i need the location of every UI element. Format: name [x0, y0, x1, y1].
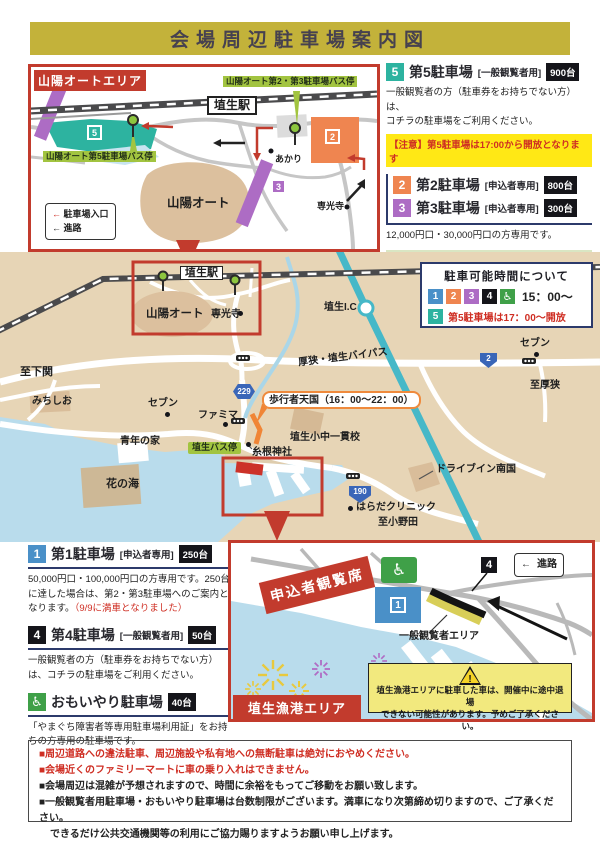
akari-label: あかり [275, 155, 302, 165]
lot5-badge: 5 [386, 63, 404, 81]
drivein-label: ドライブイン南国 [436, 464, 516, 475]
hours-title: 駐車可能時間について [428, 268, 585, 284]
famima-label: ファミマ [198, 410, 238, 421]
lot3-capacity: 300台 [544, 199, 577, 217]
hours-badge-2: 2 [446, 289, 461, 304]
inset-sanyo-auto-label: 山陽オート [167, 197, 230, 211]
inset-header: 山陽オートエリア [34, 70, 146, 91]
to-onoda-label: 至小野田 [378, 517, 418, 528]
lot5-notice: 【注意】第5駐車場は17:00から開放となります [386, 134, 592, 167]
pedestrian-zone-label: 歩行者天国（16：00～22：00） [262, 391, 421, 409]
sanyo-auto-inset-map: 山陽オートエリア 山陽オート第2・第3駐車場バス停 埴生駅 山陽オート第5駐車場… [28, 64, 380, 252]
main-station-label: 埴生駅 [180, 266, 223, 280]
lot23-desc: 12,000円口・30,000円口の方専用です。 [386, 229, 592, 244]
harbor-inset-map: 申込者観覧席 ♿ 1 4 ← 進路 一般観覧者エリア ! 埴生漁港エリアに駐車し… [228, 540, 595, 722]
harbor-legend-route-label: 進路 [537, 557, 557, 573]
lot-care-name: おもいやり駐車場 [51, 692, 163, 712]
route-arrow-icon: ← [52, 223, 61, 233]
lot23-group: 2 第2駐車場 [申込者専用] 800台 3 第3駐車場 [申込者専用] 300… [386, 174, 592, 225]
lot-care-header: ♿ おもいやり駐車場 40台 [28, 692, 230, 712]
lot-care-divider [28, 715, 230, 717]
lot2-header: 2 第2駐車場 [申込者専用] 800台 [393, 175, 592, 195]
hours-box: 駐車可能時間について 1 2 3 4 ♿ 15：00～ 5 第5駐車場は17：0… [420, 262, 593, 328]
legend-route-label: 進路 [64, 223, 82, 233]
harbor-lot4-badge: 4 [481, 557, 497, 573]
inset-legend: ← 駐車場入口 ← 進路 [45, 203, 116, 240]
inset-lot3-badge: 3 [271, 179, 286, 194]
note-line-4: ■一般観覧者用駐車場・おもいやり駐車場は台数制限がございます。満車になり次第締め… [39, 795, 561, 827]
lot1-header: 1 第1駐車場 [申込者専用] 250台 [28, 544, 230, 564]
lot2-badge: 2 [393, 176, 411, 194]
lot1-area-box: 1 [375, 587, 421, 623]
hours-note-5: 第5駐車場は17：00～開放 [448, 309, 566, 324]
lot5-header: 5 第5駐車場 [一般観覧者用] 900台 [386, 62, 592, 82]
lot3-name: 第3駐車場 [416, 198, 480, 218]
hours-row-2: 5 第5駐車場は17：00～開放 [428, 309, 585, 324]
warning-line-1: 埴生漁港エリアに駐車した車は、開催中に途中退場 [373, 685, 567, 709]
lot4-type: [一般観覧者用] [120, 628, 183, 642]
page-title: 会場周辺駐車場案内図 [30, 22, 570, 55]
note-line-1: ■周辺道路への違法駐車、周辺施設や私有地への無断駐車は絶対におやめください。 [39, 747, 561, 763]
michishio-label: みちしお [32, 396, 72, 407]
lot2-name: 第2駐車場 [416, 175, 480, 195]
senkoji-dot [238, 311, 243, 316]
akari-dot [269, 149, 274, 154]
harbor-warning-box: ! 埴生漁港エリアに駐車した車は、開催中に途中退場 できない可能性があります。予… [368, 663, 572, 713]
school-label: 埴生小中一貫校 [290, 432, 360, 443]
lot4-divider [28, 648, 230, 650]
general-area-label: 一般観覧者エリア [399, 631, 479, 642]
hours-badge-5: 5 [428, 309, 443, 324]
lot1-divider [28, 567, 230, 569]
harbor-lot1-badge: 1 [390, 597, 406, 613]
hours-badge-3: 3 [464, 289, 479, 304]
harbor-legend: ← 進路 [514, 553, 564, 577]
bus-stop-5-label: 山陽オート第5駐車場バス停 [43, 151, 156, 162]
lot3-badge: 3 [393, 199, 411, 217]
warning-line-2: できない可能性があります。予めご了承ください。 [373, 709, 567, 733]
interchange-circle [359, 301, 373, 315]
harada-clinic-label: はらだクリニック [356, 502, 436, 513]
note-line-5: できるだけ公共交通機関等の利用にご協力賜りますようお願い申し上げます。 [39, 827, 561, 843]
lot4-badge: 4 [28, 626, 46, 644]
harbor-route-arrow-icon: ← [521, 557, 531, 573]
hana-no-umi-label: 花の海 [106, 478, 139, 490]
famima-dot [223, 422, 228, 427]
lot4-header: 4 第4駐車場 [一般観覧者用] 50台 [28, 625, 230, 645]
hours-badge-4: 4 [482, 289, 497, 304]
hours-badge-1: 1 [428, 289, 443, 304]
lot5-desc: 一般観覧者の方（駐車券をお持ちでない方）は、 コチラの駐車場をご利用ください。 [386, 86, 592, 130]
seven-left-label: セブン [148, 398, 178, 409]
lot1-type: [申込者専用] [120, 547, 174, 561]
hours-time: 15：00～ [522, 288, 573, 305]
itone-shrine-label: 糸根神社 [252, 447, 292, 458]
habu-bus-stop-label: 埴生バス停 [188, 442, 241, 454]
note-line-3: ■会場周辺は混雑が予想されますので、時間に余裕をもってご移動をお願い致します。 [39, 779, 561, 795]
lot2-capacity: 800台 [544, 176, 577, 194]
lot-detail-panel: 1 第1駐車場 [申込者専用] 250台 50,000円口・100,000円口の… [28, 544, 230, 750]
lot5-type: [一般観覧者用] [478, 65, 541, 79]
lot1-capacity: 250台 [179, 545, 212, 563]
harbor-area-name: 埴生漁港エリア [233, 695, 361, 719]
lot4-capacity: 50台 [188, 626, 216, 644]
seven-left-dot [165, 412, 170, 417]
inset-lot5-badge: 5 [87, 125, 102, 140]
lot1-desc: 50,000円口・100,000円口の方専用です。250台に達した場合は、第2・… [28, 573, 230, 617]
entrance-arrow-icon: ← [52, 209, 61, 219]
lot-care-capacity: 40台 [168, 693, 196, 711]
lot3-type: [申込者専用] [485, 201, 539, 215]
parking-guide-poster: 会場周辺駐車場案内図 [0, 0, 600, 848]
wheelchair-badge-icon: ♿ [28, 693, 46, 711]
lot1-badge: 1 [28, 545, 46, 563]
seven-right-dot [534, 352, 539, 357]
to-asa-label: 至厚狭 [530, 380, 560, 391]
lot2-type: [申込者専用] [485, 178, 539, 192]
note-line-2: ■会場近くのファミリーマートに車の乗り入れはできません。 [39, 763, 561, 779]
main-sanyo-auto-label: 山陽オート [146, 308, 204, 321]
lot1-full-note: （9/9に満車となりました） [75, 603, 188, 614]
inset-senkoji-label: 専光寺 [317, 202, 344, 212]
bus-stop-23-label: 山陽オート第2・第3駐車場バス停 [223, 76, 357, 87]
lot1-name: 第1駐車場 [51, 544, 115, 564]
legend-entrance-label: 駐車場入口 [64, 209, 109, 219]
lot5-name: 第5駐車場 [409, 62, 473, 82]
inset-railway [31, 94, 377, 119]
senkoji-dot [345, 205, 350, 210]
notes-box: ■周辺道路への違法駐車、周辺施設や私有地への無断駐車は絶対におやめください。 ■… [28, 740, 572, 822]
seinen-no-ie-label: 青年の家 [120, 436, 160, 447]
seven-right-label: セブン [520, 338, 550, 349]
habu-ic-label: 埴生I.C [324, 302, 357, 313]
lot5-capacity: 900台 [546, 63, 579, 81]
main-senkoji-label: 専光寺 [211, 309, 241, 320]
hours-wheelchair-icon: ♿ [500, 289, 515, 304]
inset-lot2-badge: 2 [325, 129, 340, 144]
lot4-name: 第4駐車場 [51, 625, 115, 645]
lot3-header: 3 第3駐車場 [申込者専用] 300台 [393, 198, 592, 218]
warning-icon: ! [459, 666, 481, 685]
inset-station-label: 埴生駅 [207, 96, 257, 115]
hours-row-1: 1 2 3 4 ♿ 15：00～ [428, 288, 585, 305]
itone-shrine-dot [246, 442, 251, 447]
lot4-desc: 一般観覧者の方（駐車券をお持ちでない方）は、コチラの駐車場をご利用ください。 [28, 654, 230, 683]
harada-clinic-dot [348, 506, 353, 511]
care-area-box: ♿ [381, 557, 417, 583]
to-shimonoseki-label: 至下関 [20, 366, 53, 378]
